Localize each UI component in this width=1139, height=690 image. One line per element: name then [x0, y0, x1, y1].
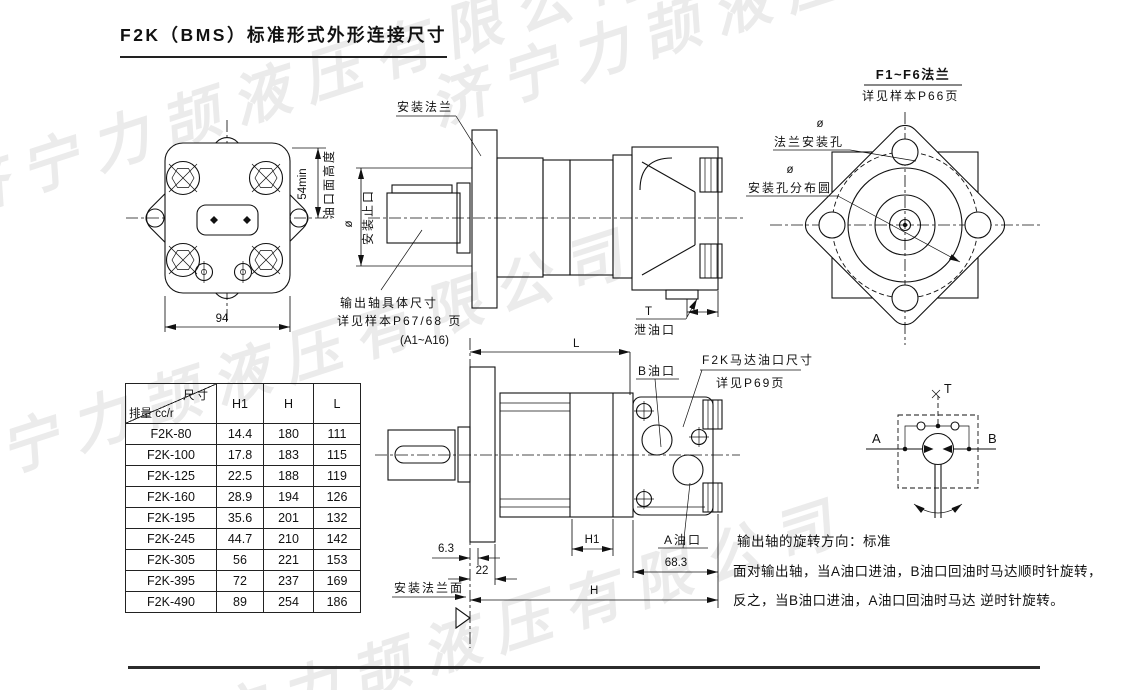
bolt-circle-dia-symbol: ø — [786, 164, 793, 176]
port-b-circle — [642, 425, 672, 455]
flange-view-title: F1~F6法兰 — [876, 67, 950, 82]
h1-cell: 35.6 — [217, 508, 264, 529]
dim-68-3: 68.3 — [665, 557, 687, 569]
spigot-dia-symbol: ø — [343, 220, 355, 227]
h1-cell: 56 — [217, 550, 264, 571]
h-cell: 221 — [264, 550, 314, 571]
dim-94: 94 — [216, 313, 229, 325]
model-cell: F2K-195 — [126, 508, 217, 529]
l-cell: 115 — [314, 445, 361, 466]
oil-port-face-height-label: 油口面高度 — [321, 149, 336, 219]
shaft-note-line1: 输出轴具体尺寸 — [340, 295, 438, 310]
model-cell: F2K-160 — [126, 487, 217, 508]
l-cell: 132 — [314, 508, 361, 529]
hydraulic-schematic: T A B — [866, 382, 997, 518]
dim-22: 22 — [476, 565, 489, 577]
h-cell: 180 — [264, 424, 314, 445]
l-cell: 119 — [314, 466, 361, 487]
h-cell: 237 — [264, 571, 314, 592]
l-cell: 186 — [314, 592, 361, 613]
model-cell: F2K-490 — [126, 592, 217, 613]
rotation-note-line1: 输出轴的旋转方向：标准 — [737, 530, 891, 550]
flange-hole-label: 法兰安装孔 — [774, 134, 844, 149]
h1-cell: 89 — [217, 592, 264, 613]
column-header-h: H — [264, 384, 314, 424]
table-header-row: 尺寸 排量 cc/r H1 H L — [126, 384, 361, 424]
table-row: F2K-10017.8183115 — [126, 445, 361, 466]
top-side-view: 安装法兰 ø 安装止口 输出轴具体尺寸 详见样本P67/68 页 (A1~A16… — [337, 99, 745, 347]
l-cell: 142 — [314, 529, 361, 550]
h1-cell: 28.9 — [217, 487, 264, 508]
shaft-note-line2: 详见样本P67/68 页 — [337, 313, 462, 328]
table-row: F2K-12522.5188119 — [126, 466, 361, 487]
spigot-label: 安装止口 — [360, 189, 375, 245]
model-cell: F2K-100 — [126, 445, 217, 466]
table-row: F2K-16028.9194126 — [126, 487, 361, 508]
h1-cell: 72 — [217, 571, 264, 592]
dim-6-3: 6.3 — [438, 543, 454, 555]
table-row: F2K-19535.6201132 — [126, 508, 361, 529]
drawing-page: 济宁力颉液压有限公司 济宁力颉液压有限公司 济宁力颉液压有限公司 济宁力颉液压有… — [0, 0, 1139, 690]
model-cell: F2K-125 — [126, 466, 217, 487]
dim-H1: H1 — [585, 534, 600, 546]
bottom-rule — [128, 666, 1040, 669]
h-cell: 183 — [264, 445, 314, 466]
port-note-line1: F2K马达油口尺寸 — [702, 353, 814, 367]
drain-port — [666, 290, 698, 299]
table-row: F2K-30556221153 — [126, 550, 361, 571]
shaft-note-line3: (A1~A16) — [400, 335, 449, 347]
column-header-h1: H1 — [217, 384, 264, 424]
schematic-a-label: A — [872, 431, 881, 446]
drain-port-label: 泄油口 — [634, 323, 676, 337]
schematic-t-label: T — [944, 382, 952, 396]
h-cell: 194 — [264, 487, 314, 508]
flange-face-label: 安装法兰面 — [394, 580, 464, 595]
column-header-l: L — [314, 384, 361, 424]
dim-L: L — [573, 338, 580, 350]
table-row: F2K-49089254186 — [126, 592, 361, 613]
table-corner-cell: 尺寸 排量 cc/r — [126, 384, 216, 423]
drain-t-label: T — [645, 306, 652, 318]
dimension-table: 尺寸 排量 cc/r H1 H L F2K-8014.4180111 F2K-1… — [125, 383, 361, 613]
table-row: F2K-8014.4180111 — [126, 424, 361, 445]
datum-triangle — [456, 608, 470, 628]
model-cell: F2K-305 — [126, 550, 217, 571]
h1-cell: 14.4 — [217, 424, 264, 445]
h-cell: 188 — [264, 466, 314, 487]
corner-label-size: 尺寸 — [183, 387, 210, 403]
page-title: F2K（BMS）标准形式外形连接尺寸 — [120, 22, 447, 58]
schematic-b-label: B — [988, 431, 997, 446]
h-cell: 201 — [264, 508, 314, 529]
front-view: 94 54min 油口面高度 — [126, 120, 336, 332]
h1-cell: 22.5 — [217, 466, 264, 487]
port-b-label: B油口 — [638, 364, 676, 378]
h-cell: 210 — [264, 529, 314, 550]
keyway-slot — [395, 446, 450, 463]
rotation-note-line2: 面对输出轴，当A油口进油，B油口回油时马达顺时针旋转， — [733, 560, 1102, 580]
flange-view-subtitle: 详见样本P66页 — [862, 88, 959, 103]
hole-dia-symbol: ø — [816, 118, 823, 130]
dim-54min: 54min — [297, 168, 309, 199]
h1-cell: 44.7 — [217, 529, 264, 550]
l-cell: 153 — [314, 550, 361, 571]
h1-cell: 17.8 — [217, 445, 264, 466]
table-row: F2K-39572237169 — [126, 571, 361, 592]
model-cell: F2K-245 — [126, 529, 217, 550]
l-cell: 169 — [314, 571, 361, 592]
bolt-circle-label: 安装孔分布圆 — [748, 180, 832, 195]
l-cell: 126 — [314, 487, 361, 508]
mounting-flange-label: 安装法兰 — [397, 99, 453, 114]
h-cell: 254 — [264, 592, 314, 613]
port-block — [633, 397, 713, 515]
dim-H: H — [590, 585, 598, 597]
model-cell: F2K-80 — [126, 424, 217, 445]
model-cell: F2K-395 — [126, 571, 217, 592]
port-a-circle — [673, 455, 703, 485]
flange-view: F1~F6法兰 详见样本P66页 ø 法兰安装孔 ø 安装孔分布圆 — [746, 67, 1040, 345]
table-row: F2K-24544.7210142 — [126, 529, 361, 550]
l-cell: 111 — [314, 424, 361, 445]
port-note-line2: 详见P69页 — [716, 375, 785, 390]
rotation-note-line3: 反之，当B油口进油，A油口回油时马达 逆时针旋转。 — [733, 589, 1064, 609]
corner-label-displacement: 排量 cc/r — [129, 405, 174, 421]
